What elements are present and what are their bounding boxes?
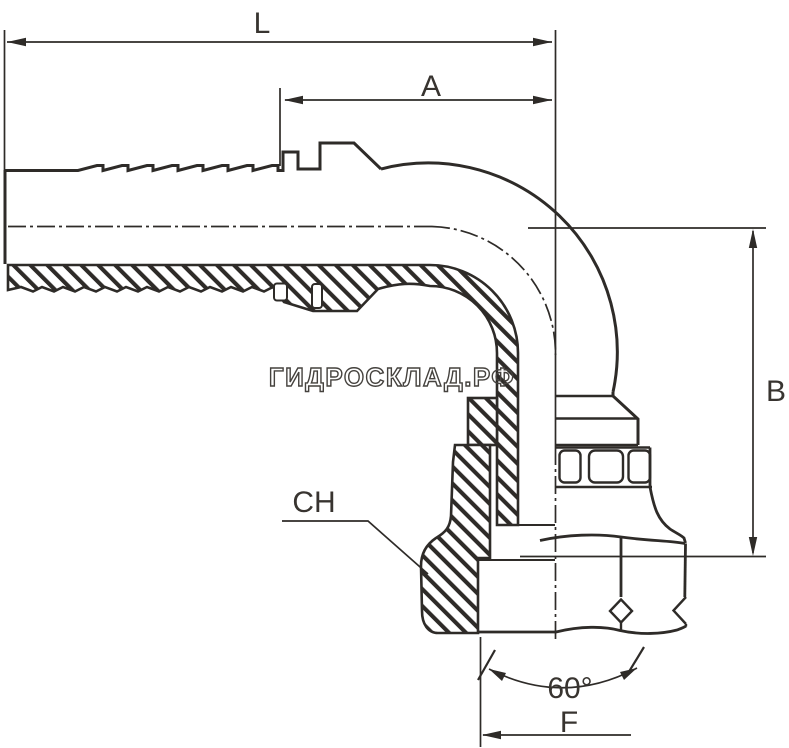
crown-slot-2 [589, 451, 623, 483]
fitting-drawing: L A B CH 60° F ГИДРОСКЛАД. [0, 0, 789, 748]
leader-CH: CH [282, 486, 428, 574]
watermark-text: ГИДРОСКЛАД.РФ [269, 362, 515, 392]
flange-left-section [468, 398, 497, 445]
arrow-down [749, 537, 757, 556]
dimension-B: B [520, 228, 786, 557]
leader-line [282, 521, 428, 574]
technical-drawing-page: L A B CH 60° F ГИДРОСКЛАД. [0, 0, 789, 748]
arrow-left [7, 38, 26, 46]
arrow-right [620, 668, 637, 680]
arrow-left [489, 669, 506, 681]
section-hatching [8, 265, 518, 633]
dim-label-CH: CH [292, 486, 335, 519]
arrow-left [482, 731, 501, 739]
crown-slot-1 [560, 451, 581, 483]
arrow-left [284, 96, 303, 104]
dim-label-B: B [766, 375, 786, 408]
barb-top-profile [5, 143, 381, 171]
arrow-right [533, 38, 552, 46]
dim-label-L: L [254, 7, 271, 40]
crimp-groove-1 [274, 284, 287, 301]
crimp-groove-2 [312, 284, 322, 308]
hex-corner-chevron [674, 597, 687, 624]
dimension-angle-60: 60° [478, 647, 644, 705]
dim-label-A: A [421, 70, 441, 103]
nut-top-face [540, 535, 685, 544]
dim-label-60: 60° [547, 672, 592, 705]
hex-edge-right [685, 544, 686, 598]
nut-bottom-face [478, 626, 686, 633]
watermark: ГИДРОСКЛАД.РФ [269, 362, 515, 392]
nut-skirt [650, 487, 686, 543]
nut-left-section [421, 445, 490, 633]
arrow-up [749, 229, 757, 248]
hose-tail-section [8, 265, 518, 525]
crown-slot-3 [629, 451, 651, 483]
arrow-right [533, 96, 552, 104]
hose-barb [5, 143, 381, 264]
hex-corner-diamond [610, 600, 632, 623]
dim-label-F: F [560, 706, 578, 739]
